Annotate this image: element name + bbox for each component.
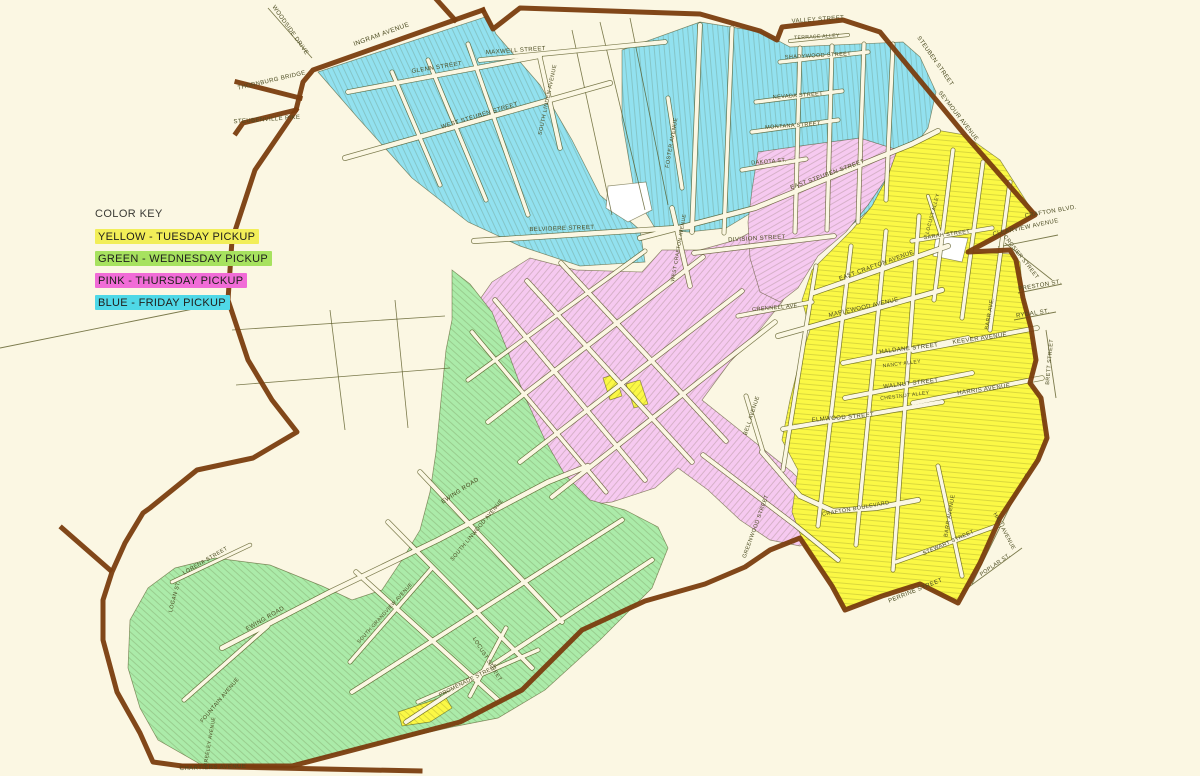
block-line: [330, 310, 345, 430]
color-key-entry-tuesday: YELLOW - TUESDAY PICKUP: [95, 229, 259, 244]
color-key-entry-friday: BLUE - FRIDAY PICKUP: [95, 295, 230, 310]
color-key-entry-wednesday: GREEN - WEDNESDAY PICKUP: [95, 251, 272, 266]
color-key-title: COLOR KEY: [95, 208, 272, 220]
block-line: [236, 368, 450, 385]
street-label: TERRACE ALLEY: [794, 33, 840, 41]
street-label: STEUBENVILLE PIKE: [233, 115, 300, 126]
pickup-zone-map: WOODSIDE DRIVETHORNBURG BRIDGESTEUBENVIL…: [0, 0, 1200, 776]
color-key: COLOR KEY YELLOW - TUESDAY PICKUP GREEN …: [95, 208, 272, 310]
color-key-entry-thursday: PINK - THURSDAY PICKUP: [95, 273, 247, 288]
block-line: [232, 316, 445, 330]
street-label: CHARTIERS AVENUE: [180, 764, 247, 772]
borough-boundary: [62, 528, 110, 570]
street-label: CRAFTON BLVD.: [1024, 204, 1077, 219]
borough-boundary: [437, 0, 455, 20]
street-label: WOODSIDE DRIVE: [270, 5, 309, 57]
map-canvas: WOODSIDE DRIVETHORNBURG BRIDGESTEUBENVIL…: [0, 0, 1200, 776]
street-label: PRESTON ST.: [1018, 279, 1062, 292]
